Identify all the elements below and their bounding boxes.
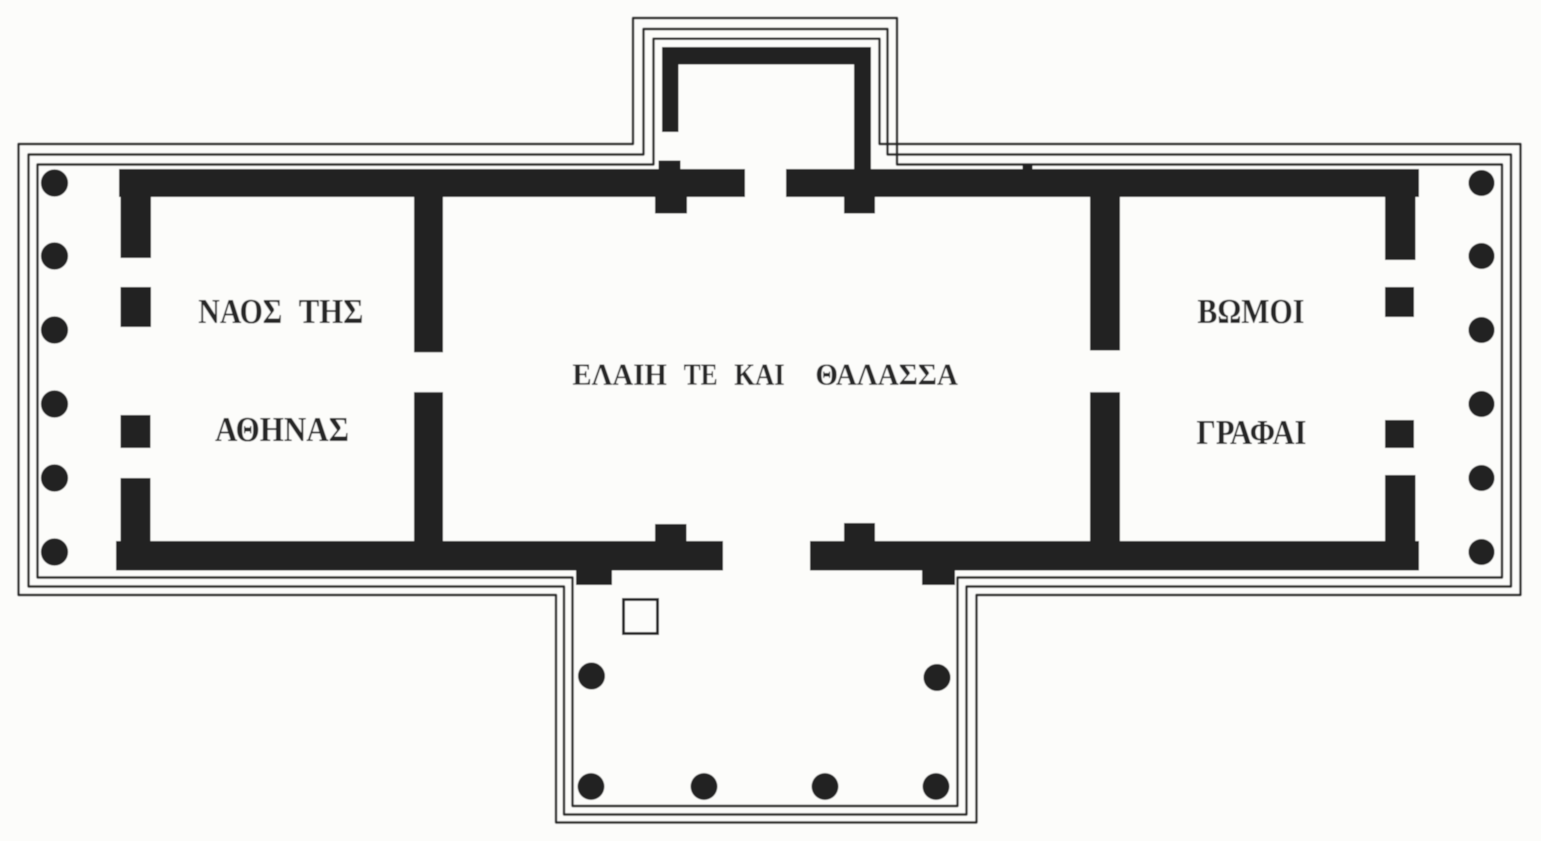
svg-text:ΚΑΙ: ΚΑΙ <box>734 357 785 392</box>
svg-text:ΘΑΛΑΣΣΑ: ΘΑΛΑΣΣΑ <box>815 357 958 392</box>
svg-text:ΤΗΣ: ΤΗΣ <box>299 292 364 331</box>
svg-text:ΓΡΑΦΑΙ: ΓΡΑΦΑΙ <box>1196 413 1306 452</box>
svg-text:ΤΕ: ΤΕ <box>684 357 718 392</box>
svg-text:ΕΛΑΙΗ: ΕΛΑΙΗ <box>572 357 667 392</box>
svg-text:ΑΘΗΝΑΣ: ΑΘΗΝΑΣ <box>215 410 349 449</box>
svg-text:ΒΩΜΟΙ: ΒΩΜΟΙ <box>1197 292 1304 331</box>
svg-text:ΝΑΟΣ: ΝΑΟΣ <box>198 292 282 331</box>
